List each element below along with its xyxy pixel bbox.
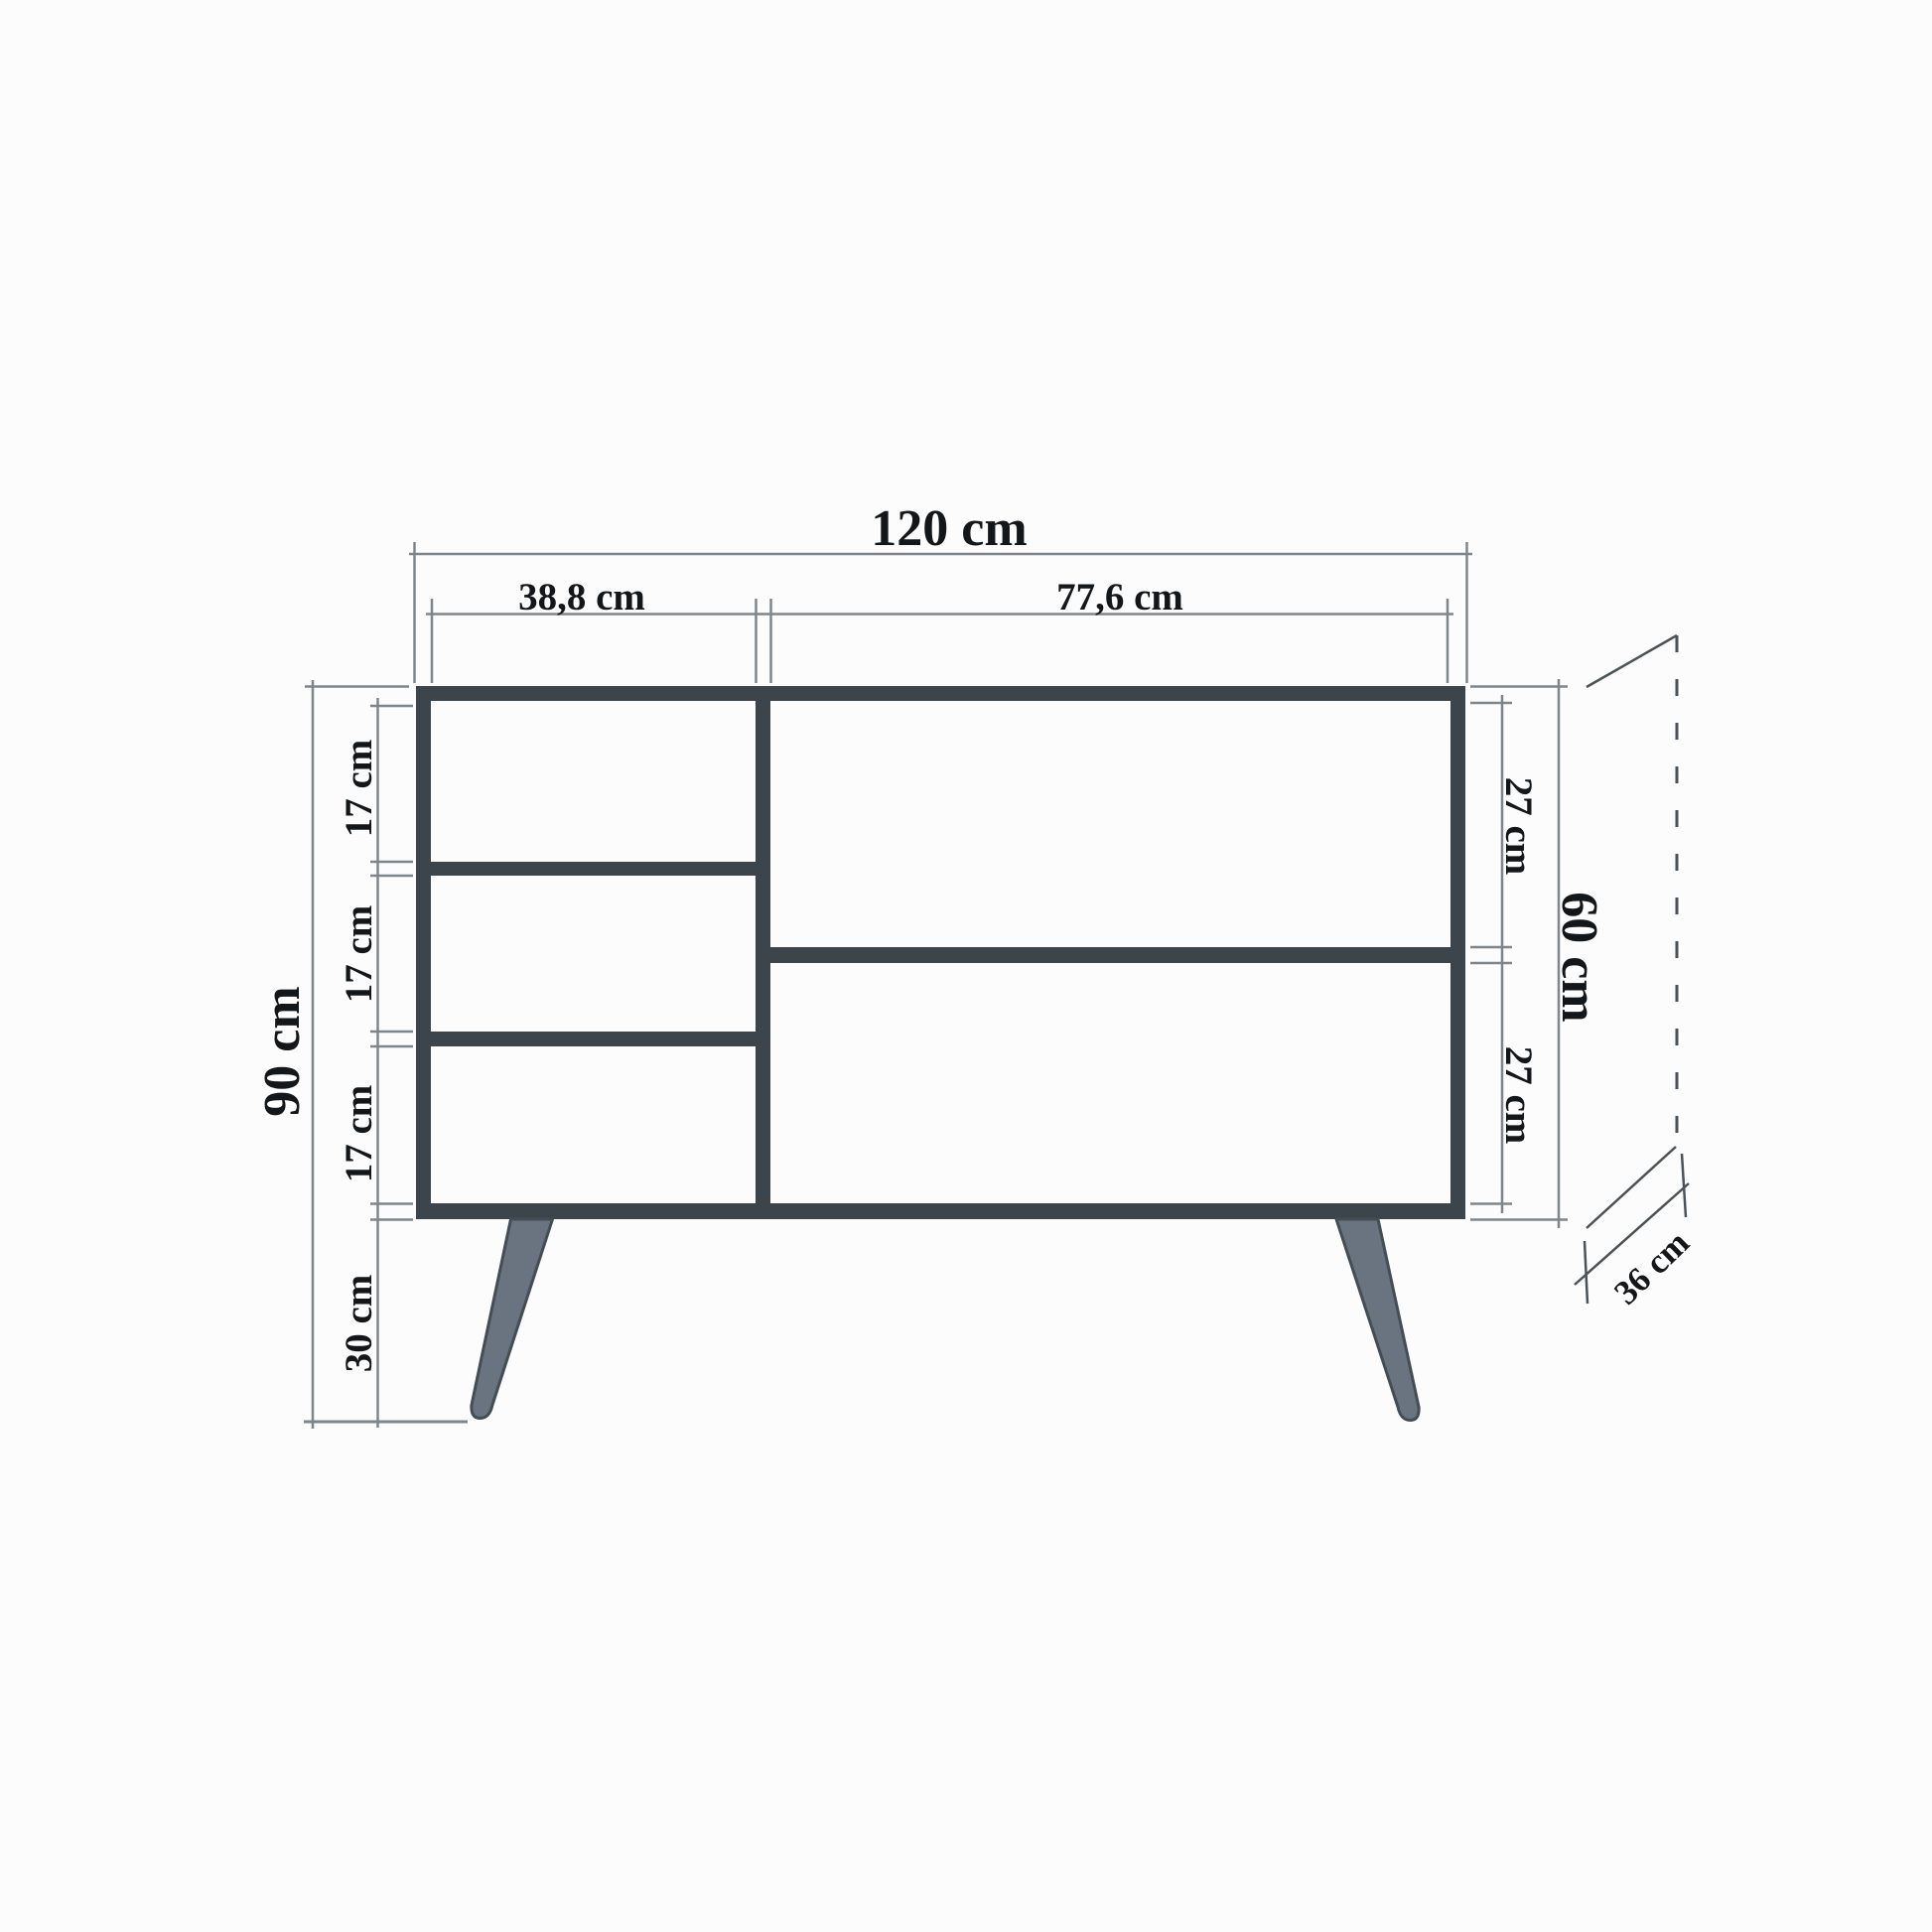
svg-text:30 cm: 30 cm — [338, 1275, 380, 1373]
svg-text:77,6 cm: 77,6 cm — [1056, 576, 1183, 619]
svg-text:17 cm: 17 cm — [338, 1085, 380, 1183]
svg-text:120 cm: 120 cm — [871, 500, 1027, 557]
svg-text:38,8 cm: 38,8 cm — [518, 576, 645, 619]
svg-text:27 cm: 27 cm — [1497, 1046, 1540, 1145]
svg-text:17 cm: 17 cm — [338, 740, 380, 838]
svg-text:17 cm: 17 cm — [338, 905, 380, 1004]
svg-text:90 cm: 90 cm — [254, 986, 311, 1116]
svg-text:27 cm: 27 cm — [1497, 777, 1540, 876]
svg-text:60 cm: 60 cm — [1551, 892, 1607, 1022]
